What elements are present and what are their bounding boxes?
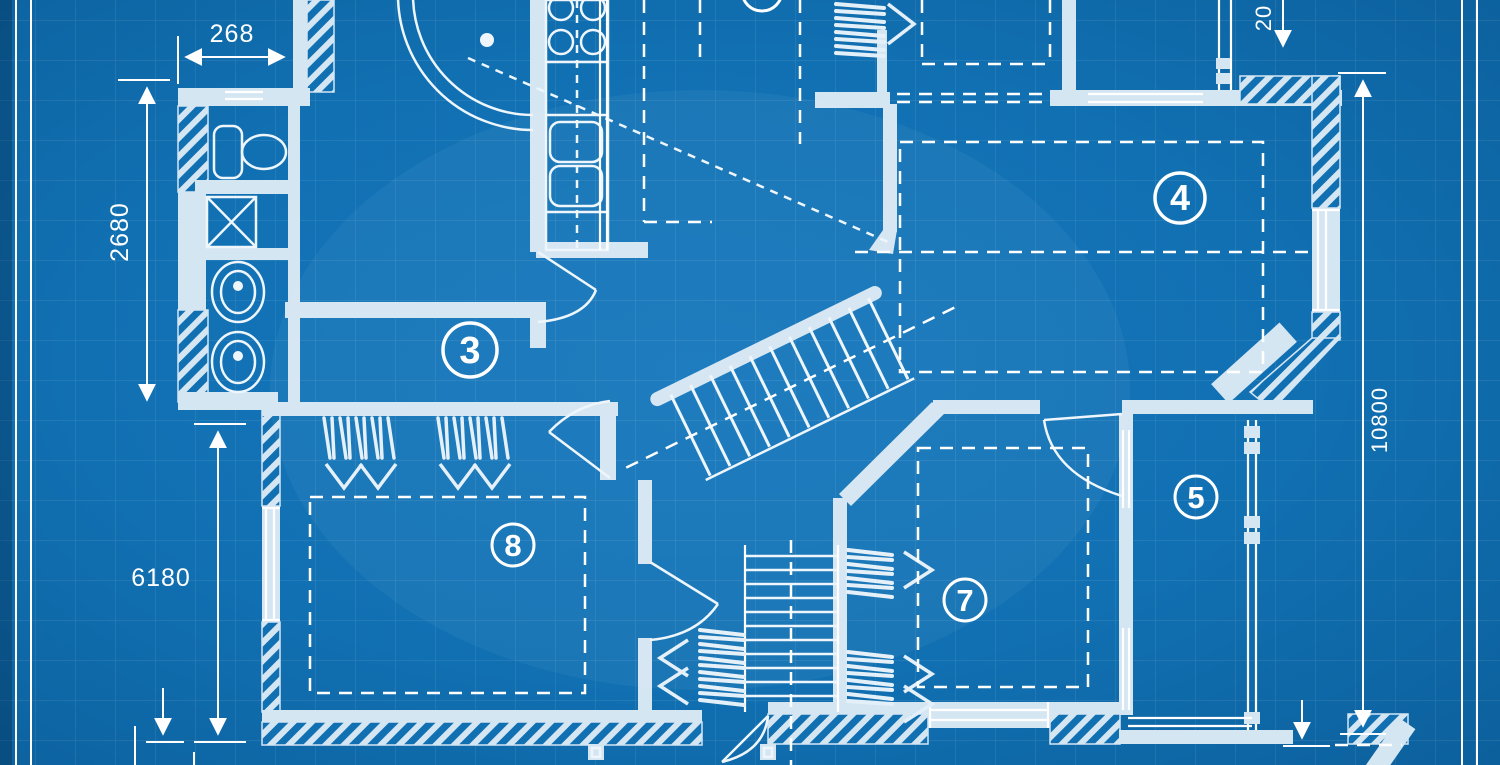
wall-room5-left — [1119, 414, 1133, 715]
wall-hatched-bottom — [262, 722, 702, 745]
wall-divider — [195, 248, 290, 260]
wall — [262, 710, 702, 722]
light-sheen — [270, 90, 1130, 690]
dimension-label: 6180 — [131, 564, 191, 592]
wall — [877, 30, 887, 92]
wall-hatched — [262, 622, 280, 712]
wall-hatched — [1312, 76, 1340, 208]
door-post — [588, 744, 604, 760]
dimension-label: 2680 — [106, 202, 134, 262]
room-number: 4 — [1170, 177, 1190, 218]
page-edge-shade — [0, 0, 12, 765]
wall-top-rooms-divider — [1062, 0, 1076, 92]
wall-hatched — [178, 310, 208, 402]
wall-hatched — [178, 106, 208, 192]
wall-window-base — [262, 506, 280, 622]
blueprint-floor-plan: 3 4 5 7 8 268 — [0, 0, 1500, 765]
door-post — [760, 744, 776, 760]
wall-hatched — [1312, 312, 1340, 340]
dimension-label: 20 — [1251, 5, 1276, 31]
dimension-label: 268 — [210, 20, 255, 48]
wall-divider — [195, 180, 290, 194]
wall-room5-top — [1122, 400, 1313, 414]
wall-hatched — [307, 0, 334, 92]
window-bottom-room7 — [928, 702, 1050, 728]
wall — [178, 88, 310, 106]
wall-room5-bottom — [1119, 730, 1293, 744]
dimension-label: 10800 — [1367, 387, 1392, 453]
wall-hatched-bottom — [1050, 714, 1120, 744]
room-number: 5 — [1187, 480, 1204, 515]
